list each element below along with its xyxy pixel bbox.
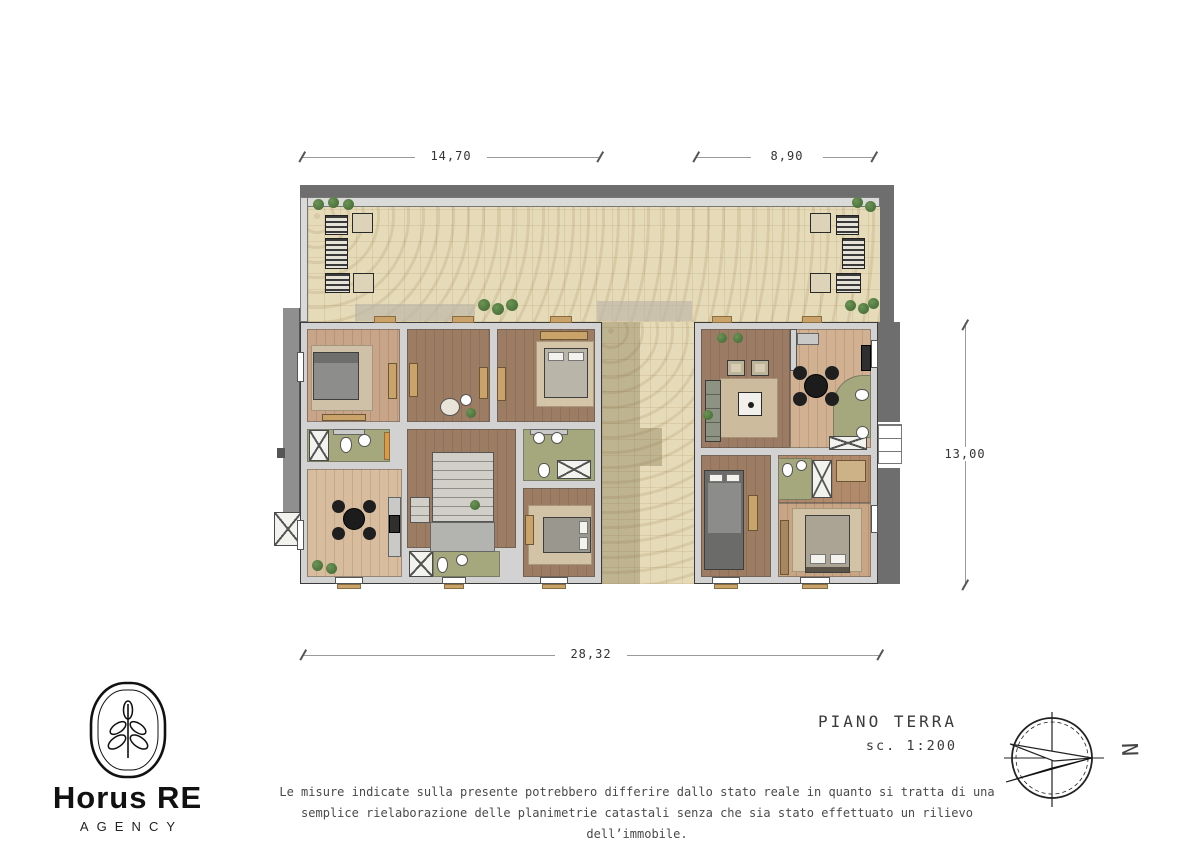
terrace-entry-path <box>597 301 692 321</box>
window-sill <box>444 584 464 589</box>
disclaimer-text: Le misure indicate sulla presente potreb… <box>252 782 1022 845</box>
dimension-label-depth: 13,00 <box>929 447 1001 461</box>
kitchen-appliance <box>861 345 871 371</box>
building-cast-shadow <box>640 428 662 466</box>
kitchen-counter <box>797 333 819 345</box>
plant <box>466 408 476 418</box>
coffee-table <box>738 392 762 416</box>
window <box>800 577 830 584</box>
terrace-parapet-top <box>300 197 880 207</box>
bed-headboard <box>806 567 849 572</box>
door-threshold <box>712 316 732 323</box>
plant <box>845 300 856 311</box>
pillow <box>830 554 846 564</box>
desk <box>479 367 488 399</box>
side-table <box>440 398 460 416</box>
plant <box>865 201 876 212</box>
plant <box>703 410 713 420</box>
shower <box>812 460 832 498</box>
window <box>442 577 466 584</box>
side-wall-shadow <box>878 468 900 584</box>
partition-wall <box>790 329 797 371</box>
chair <box>332 527 345 540</box>
terrace-wall-shadow-top <box>300 185 894 197</box>
window <box>871 340 878 368</box>
chair <box>793 366 807 380</box>
plant <box>733 333 743 343</box>
shower <box>557 460 591 479</box>
drawing-scale: sc. 1:200 <box>757 738 957 754</box>
door-leaf <box>384 432 390 460</box>
terrace-table <box>352 213 373 233</box>
staircase <box>432 452 494 522</box>
dining-table <box>804 374 828 398</box>
floor-title: PIANO TERRA <box>757 712 957 731</box>
plant <box>852 197 863 208</box>
plant <box>343 199 354 210</box>
plant <box>492 303 504 315</box>
plant <box>328 197 339 208</box>
toilet <box>340 437 352 453</box>
stair-flight <box>410 497 430 523</box>
toilet <box>782 463 793 477</box>
toilet <box>855 389 869 401</box>
sun-lounger <box>325 273 350 293</box>
sun-lounger <box>842 238 865 269</box>
pillow <box>726 474 740 482</box>
table-centerpiece <box>748 402 754 408</box>
door-threshold <box>374 316 396 323</box>
dimension-tick <box>961 579 968 590</box>
desk <box>748 495 758 531</box>
chair <box>825 392 839 406</box>
window-sill <box>714 584 738 589</box>
building-cast-shadow <box>602 322 640 584</box>
plant <box>717 333 727 343</box>
plant <box>313 199 324 210</box>
sink <box>533 432 545 444</box>
pillow <box>579 537 588 550</box>
stove <box>389 515 400 533</box>
bed-mattress <box>708 483 741 533</box>
shower <box>309 430 329 461</box>
plant <box>470 500 480 510</box>
plant <box>312 560 323 571</box>
bed <box>544 348 588 398</box>
sun-lounger <box>325 238 348 269</box>
plant <box>326 563 337 574</box>
desk <box>388 363 397 399</box>
wall-pier <box>277 448 285 458</box>
chair <box>363 527 376 540</box>
sun-lounger <box>836 215 859 235</box>
bed <box>313 352 359 400</box>
terrace-table <box>353 273 374 293</box>
window <box>712 577 740 584</box>
plant <box>478 299 490 311</box>
window <box>540 577 568 584</box>
window <box>871 505 878 533</box>
side-wall-shadow <box>878 322 900 422</box>
window-sill <box>802 584 828 589</box>
pillow <box>568 352 584 361</box>
sink <box>358 434 371 447</box>
plant <box>868 298 879 309</box>
bed <box>704 470 744 570</box>
window <box>297 352 304 382</box>
desk <box>409 363 418 397</box>
pillow <box>548 352 564 361</box>
shower <box>409 551 433 577</box>
plant <box>506 299 518 311</box>
bed-headboard <box>314 353 358 363</box>
sink <box>856 426 869 439</box>
pillow <box>579 521 588 534</box>
dimension-label-terrace-left: 14,70 <box>415 149 487 163</box>
toilet <box>538 463 550 478</box>
dimension-label-terrace-right: 8,90 <box>751 149 823 163</box>
side-wall-shadow <box>283 308 300 512</box>
sink <box>551 432 563 444</box>
terrace-table <box>810 273 831 293</box>
brand-name: Horus RE <box>45 780 210 816</box>
wardrobe <box>540 331 588 340</box>
chair <box>363 500 376 513</box>
desk <box>525 515 534 545</box>
armchair <box>727 360 745 376</box>
terrace-parapet-left <box>300 197 308 322</box>
desk <box>497 367 506 401</box>
pillow <box>810 554 826 564</box>
chair <box>825 366 839 380</box>
dining-table <box>343 508 365 530</box>
chair <box>793 392 807 406</box>
brand-subtitle: AGENCY <box>45 819 210 834</box>
terrace-wall-shadow-right <box>880 185 894 322</box>
wheat-logo-icon <box>45 680 210 780</box>
wardrobe <box>780 520 789 575</box>
north-label: N <box>1116 742 1141 756</box>
disclaimer-line-2: semplice rielaborazione delle planimetri… <box>252 803 1022 845</box>
dimension-label-total-width: 28,32 <box>555 647 627 661</box>
door-threshold <box>550 316 572 323</box>
bench <box>322 414 366 421</box>
stair-landing <box>430 522 495 552</box>
window-sill <box>337 584 361 589</box>
door-threshold <box>452 316 474 323</box>
window <box>335 577 363 584</box>
toilet <box>437 557 448 573</box>
sink <box>796 460 807 471</box>
balcony-opening <box>878 424 902 464</box>
window-sill <box>542 584 566 589</box>
pillow <box>709 474 723 482</box>
title-block: PIANO TERRA sc. 1:200 <box>757 712 957 754</box>
armchair <box>751 360 769 376</box>
floor-plan-sheet: 14,70 8,90 13,00 28,32 <box>0 0 1200 848</box>
stool <box>460 394 472 406</box>
agency-logo: Horus RE AGENCY <box>45 680 210 834</box>
window <box>297 520 304 550</box>
door-threshold <box>802 316 822 323</box>
sun-lounger <box>836 273 861 293</box>
sink <box>456 554 468 566</box>
wardrobe <box>836 460 866 482</box>
disclaimer-line-1: Le misure indicate sulla presente potreb… <box>252 782 1022 803</box>
sun-lounger <box>325 215 348 235</box>
bed <box>543 517 591 553</box>
bed <box>805 515 850 573</box>
chair <box>332 500 345 513</box>
terrace-table <box>810 213 831 233</box>
